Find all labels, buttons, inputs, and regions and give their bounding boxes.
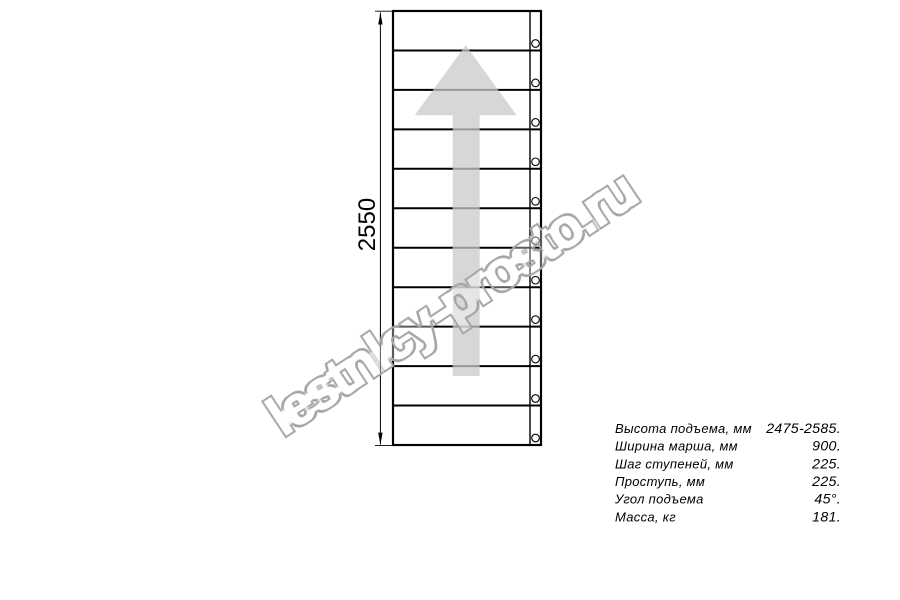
svg-text:225.: 225. bbox=[811, 456, 841, 472]
svg-text:Высота подъема, мм: Высота подъема, мм bbox=[615, 421, 752, 436]
svg-text:Масса, кг: Масса, кг bbox=[615, 509, 676, 524]
svg-text:181.: 181. bbox=[812, 509, 841, 525]
svg-text:2475-2585.: 2475-2585. bbox=[765, 421, 841, 437]
svg-text:900.: 900. bbox=[812, 439, 841, 455]
svg-text:225.: 225. bbox=[811, 474, 841, 490]
svg-text:Проступь, мм: Проступь, мм bbox=[615, 474, 705, 489]
svg-text:45°.: 45°. bbox=[814, 492, 841, 508]
svg-text:Шаг ступеней, мм: Шаг ступеней, мм bbox=[615, 456, 734, 471]
svg-text:2550: 2550 bbox=[354, 198, 381, 251]
svg-text:Угол подъема: Угол подъема bbox=[614, 492, 704, 507]
svg-text:Ширина марша, мм: Ширина марша, мм bbox=[615, 439, 738, 454]
